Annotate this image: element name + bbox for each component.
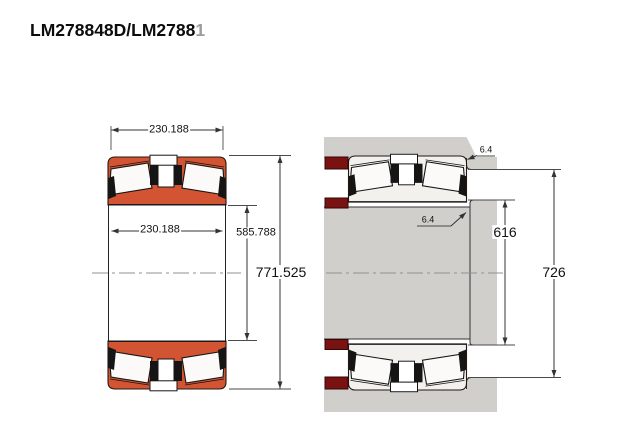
dim-inner-width: 230.188 — [139, 225, 181, 236]
cup-bottom-row — [108, 341, 226, 391]
dim-housing-fillet-radius: 6.4 — [480, 146, 493, 155]
page-title: LM278848D/LM27881 — [30, 20, 205, 41]
mounted-bearing-top-row — [349, 154, 467, 202]
dim-shaft-fillet-radius: 6.4 — [422, 216, 435, 225]
right-figure-mounting — [324, 136, 561, 412]
dim-overall-width: 230.188 — [148, 125, 190, 136]
mounted-bearing-bottom-row — [349, 344, 467, 392]
bearing-part-number: LM278848D/LM2788 — [30, 20, 195, 40]
page: LM278848D/LM27881 230.188 230.188 585.78… — [0, 0, 640, 440]
dim-bore-diameter: 585.788 — [235, 228, 277, 239]
dim-outer-diameter: 771.525 — [255, 265, 308, 279]
cup-top-row — [108, 155, 226, 205]
dim-shaft-shoulder-diameter: 616 — [492, 225, 517, 239]
technical-drawing — [0, 0, 640, 440]
dim-housing-shoulder-diameter: 726 — [541, 265, 566, 279]
clipped-character: 1 — [195, 20, 205, 40]
left-figure-bearing-section — [92, 126, 291, 391]
housing-bottom — [324, 390, 497, 413]
